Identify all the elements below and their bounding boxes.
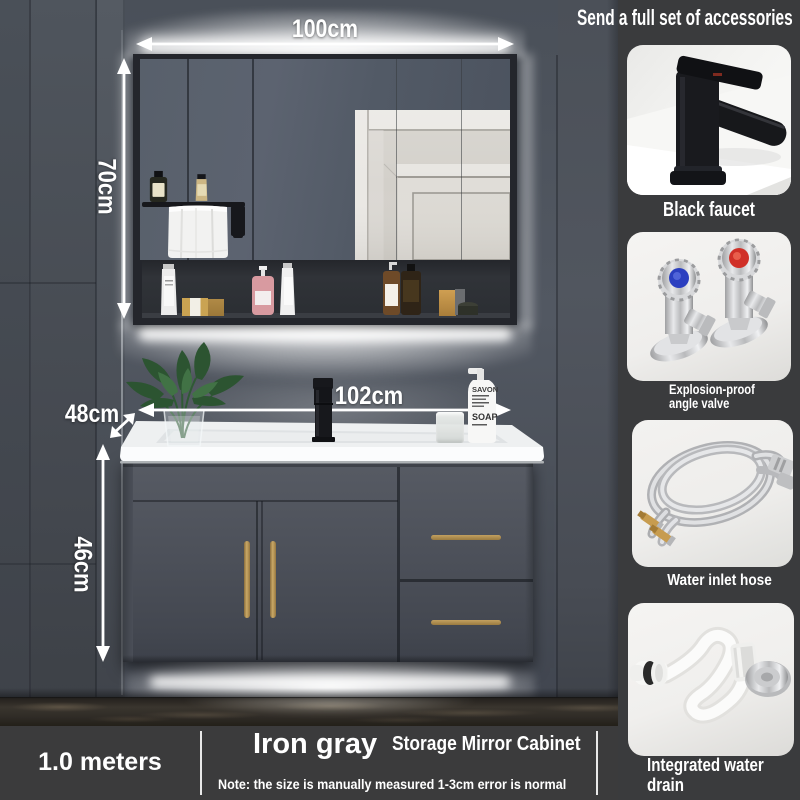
svg-text:SAVON: SAVON <box>472 385 498 394</box>
svg-text:SOAP: SOAP <box>472 412 498 422</box>
